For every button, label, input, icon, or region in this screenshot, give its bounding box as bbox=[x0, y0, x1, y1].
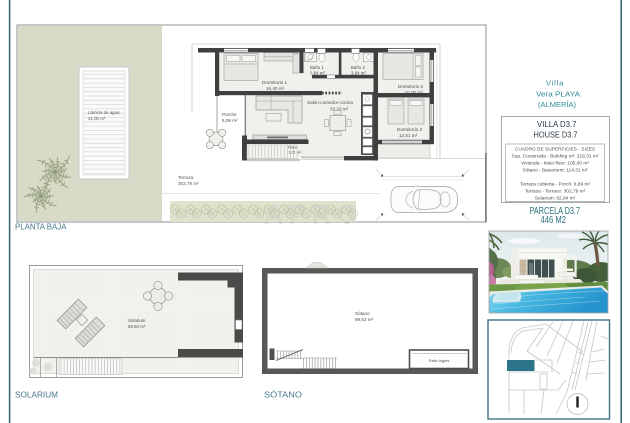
svg-text:92,84 m²: 92,84 m² bbox=[128, 324, 146, 329]
svg-text:Sótano: Sótano bbox=[355, 311, 370, 316]
svg-text:21,00 m²: 21,00 m² bbox=[88, 116, 106, 121]
svg-text:Vivienda - Main floor: 105,00: Vivienda - Main floor: 105,00 m² bbox=[521, 161, 589, 167]
svg-text:VILLA D3.7: VILLA D3.7 bbox=[537, 120, 577, 129]
svg-text:Baño 2: Baño 2 bbox=[351, 65, 365, 70]
svg-text:(ALMERÍA): (ALMERÍA) bbox=[538, 100, 576, 109]
svg-text:Sótano - Basement: 114,31 m²: Sótano - Basement: 114,31 m² bbox=[523, 168, 588, 174]
svg-text:Baño 1: Baño 1 bbox=[310, 65, 324, 70]
svg-text:Dormitorio 1: Dormitorio 1 bbox=[262, 80, 287, 85]
svg-text:Terraza - Terrace: 302,79 m²: Terraza - Terrace: 302,79 m² bbox=[525, 189, 586, 195]
svg-text:446 M2: 446 M2 bbox=[541, 215, 567, 226]
svg-text:HOUSE D3.7: HOUSE D3.7 bbox=[534, 131, 579, 140]
svg-text:12,51 m²: 12,51 m² bbox=[399, 133, 418, 138]
svg-text:SOLARIUM: SOLARIUM bbox=[15, 391, 58, 400]
svg-text:Dormitorio 3: Dormitorio 3 bbox=[397, 127, 422, 132]
svg-text:302,79 m²: 302,79 m² bbox=[178, 181, 199, 186]
svg-text:16,40 m²: 16,40 m² bbox=[266, 86, 285, 91]
svg-text:Villa: Villa bbox=[546, 79, 564, 88]
svg-text:APRO: APRO bbox=[265, 201, 364, 229]
svg-text:Terraza cubierta - Porch: 6,8: Terraza cubierta - Porch: 6,89 m² bbox=[520, 182, 591, 188]
svg-text:Lámina de agua: Lámina de agua bbox=[88, 110, 120, 115]
svg-text:6,09 m²: 6,09 m² bbox=[222, 118, 238, 123]
svg-text:CUADRO DE SUPERFICIES - SIZES: CUADRO DE SUPERFICIES - SIZES bbox=[515, 147, 595, 153]
svg-text:Solarium: Solarium bbox=[128, 318, 146, 323]
svg-text:Sup. Construida - Building m²: Sup. Construida - Building m²: 219,31 m² bbox=[512, 154, 599, 160]
svg-text:Patio inglés: Patio inglés bbox=[429, 358, 450, 363]
svg-text:1,21 m²: 1,21 m² bbox=[288, 150, 302, 155]
svg-text:Salón-comedor-cocina: Salón-comedor-cocina bbox=[307, 100, 353, 105]
svg-text:PLANTA BAJA: PLANTA BAJA bbox=[15, 223, 67, 232]
svg-text:Terraza: Terraza bbox=[178, 175, 194, 180]
svg-text:Dormitorio 2: Dormitorio 2 bbox=[398, 84, 423, 89]
svg-text:Vera PLAYA: Vera PLAYA bbox=[536, 90, 581, 99]
svg-text:Solarium: 92,84 m²: Solarium: 92,84 m² bbox=[535, 196, 576, 202]
svg-text:99,53 m²: 99,53 m² bbox=[355, 317, 374, 322]
svg-text:Porche: Porche bbox=[222, 112, 237, 117]
svg-text:SÓTANO: SÓTANO bbox=[264, 391, 302, 400]
